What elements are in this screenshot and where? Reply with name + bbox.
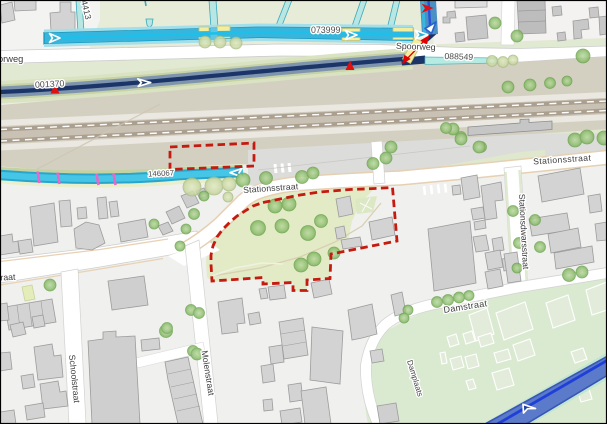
svg-text:146067: 146067 [148,168,174,178]
svg-text:orweg: orweg [0,54,23,64]
svg-text:traat: traat [0,272,16,283]
svg-text:Spoorweg: Spoorweg [396,41,436,52]
svg-text:001370: 001370 [35,78,65,90]
svg-text:088549: 088549 [444,51,473,62]
svg-text:073999: 073999 [311,25,340,35]
